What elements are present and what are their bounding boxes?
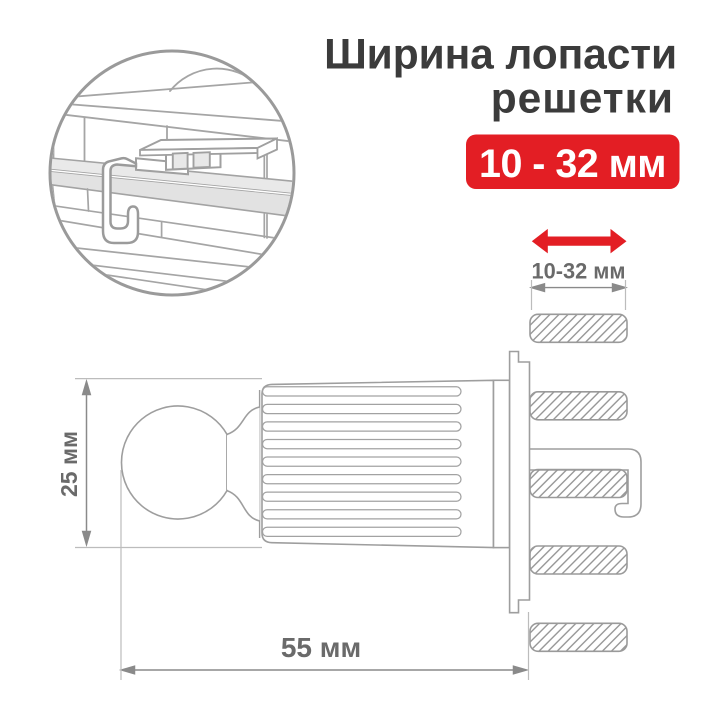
svg-text:25 мм: 25 мм [56,431,82,497]
svg-text:55 мм: 55 мм [281,632,361,663]
svg-text:10-32 мм: 10-32 мм [531,259,625,284]
svg-text:Ширина лопасти: Ширина лопасти [324,32,677,79]
svg-text:10 - 32 мм: 10 - 32 мм [479,142,666,186]
svg-text:решетки: решетки [491,76,674,123]
